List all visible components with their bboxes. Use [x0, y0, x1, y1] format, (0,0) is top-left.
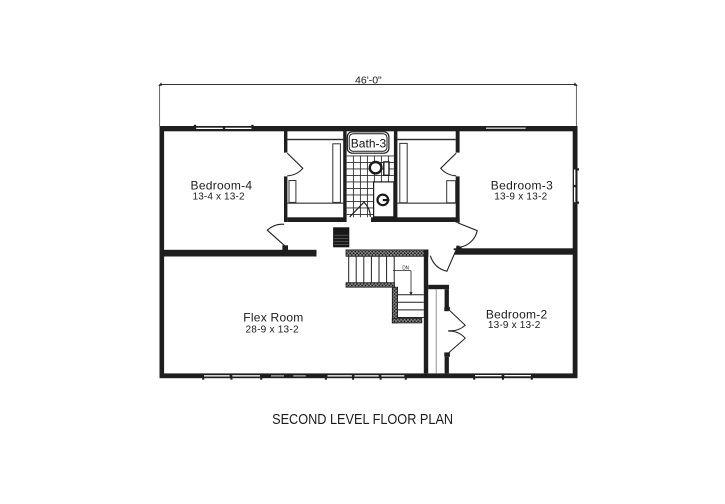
svg-text:28-9 x 13-2: 28-9 x 13-2 [246, 324, 299, 335]
svg-text:13-4 x 13-2: 13-4 x 13-2 [193, 191, 245, 202]
svg-text:13-9 x 13-2: 13-9 x 13-2 [494, 191, 547, 202]
svg-text:Bath-3: Bath-3 [351, 137, 387, 151]
svg-text:Bedroom-3: Bedroom-3 [491, 178, 553, 192]
svg-text:46'-0": 46'-0" [355, 75, 382, 87]
svg-text:Flex Room: Flex Room [243, 311, 303, 325]
svg-text:13-9 x 13-2: 13-9 x 13-2 [488, 320, 541, 331]
svg-text:Bedroom-4: Bedroom-4 [191, 178, 253, 192]
svg-text:SECOND LEVEL FLOOR PLAN: SECOND LEVEL FLOOR PLAN [272, 412, 453, 428]
